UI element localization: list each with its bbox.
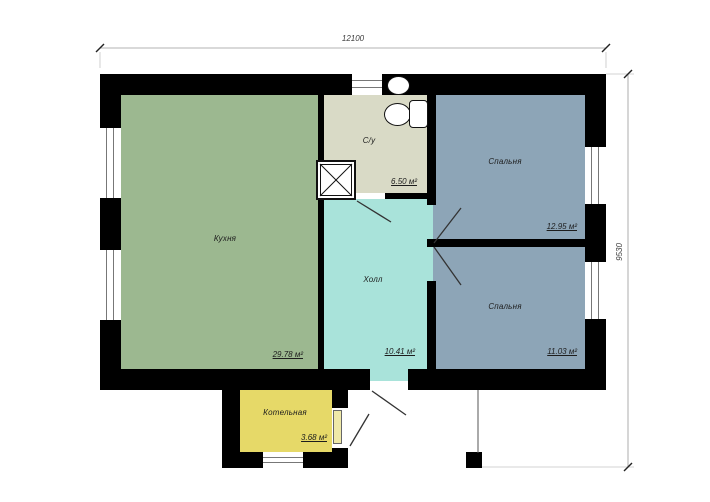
window-right-1 xyxy=(585,147,606,204)
room-boiler-label: Котельная xyxy=(253,408,317,418)
room-boiler-area: 3.68 м² xyxy=(265,433,327,443)
room-hall-label: Холл xyxy=(347,275,399,285)
room-kitchen-label: Кухня xyxy=(190,234,260,244)
entrance-door-opening xyxy=(370,369,408,381)
interior-wall xyxy=(427,281,436,369)
room-bathroom-area: 6.50 м² xyxy=(355,177,417,187)
entrance-door-swing xyxy=(372,391,406,415)
room-bedroom-top-label: Спальня xyxy=(470,157,540,167)
dimension-label-right: 9530 xyxy=(615,224,625,280)
room-bedroom-top-area: 12.95 м² xyxy=(515,222,577,232)
boiler-door-leaf xyxy=(333,410,342,444)
room-bathroom-label: С/у xyxy=(345,136,393,146)
toilet-tank-icon xyxy=(409,100,428,128)
floor-plan: Кухня 29.78 м² С/у 6.50 м² Холл 10.41 м²… xyxy=(0,0,710,502)
interior-wall xyxy=(427,95,436,205)
bathroom-door-opening xyxy=(355,193,385,199)
porch-pillar xyxy=(466,452,482,468)
window-top xyxy=(352,74,382,95)
window-left-2 xyxy=(100,250,121,320)
toilet-icon xyxy=(384,103,411,126)
shower-tray-inner xyxy=(320,164,352,196)
window-left-1 xyxy=(100,128,121,198)
dimension-label-top: 12100 xyxy=(323,34,383,44)
window-boiler xyxy=(263,452,303,468)
entrance-door-opening xyxy=(370,381,408,390)
room-bedroom-bottom-label: Спальня xyxy=(470,302,540,312)
room-kitchen xyxy=(121,95,318,369)
room-hall-area: 10.41 м² xyxy=(353,347,415,357)
window-right-2 xyxy=(585,262,606,319)
boiler-door-swing xyxy=(350,414,369,446)
interior-wall xyxy=(427,239,585,247)
room-bedroom-top xyxy=(433,95,585,239)
room-bedroom-bottom-area: 11.03 м² xyxy=(515,347,577,357)
sink-icon xyxy=(387,76,410,95)
room-kitchen-area: 29.78 м² xyxy=(241,350,303,360)
shower-tray-icon xyxy=(316,160,356,200)
